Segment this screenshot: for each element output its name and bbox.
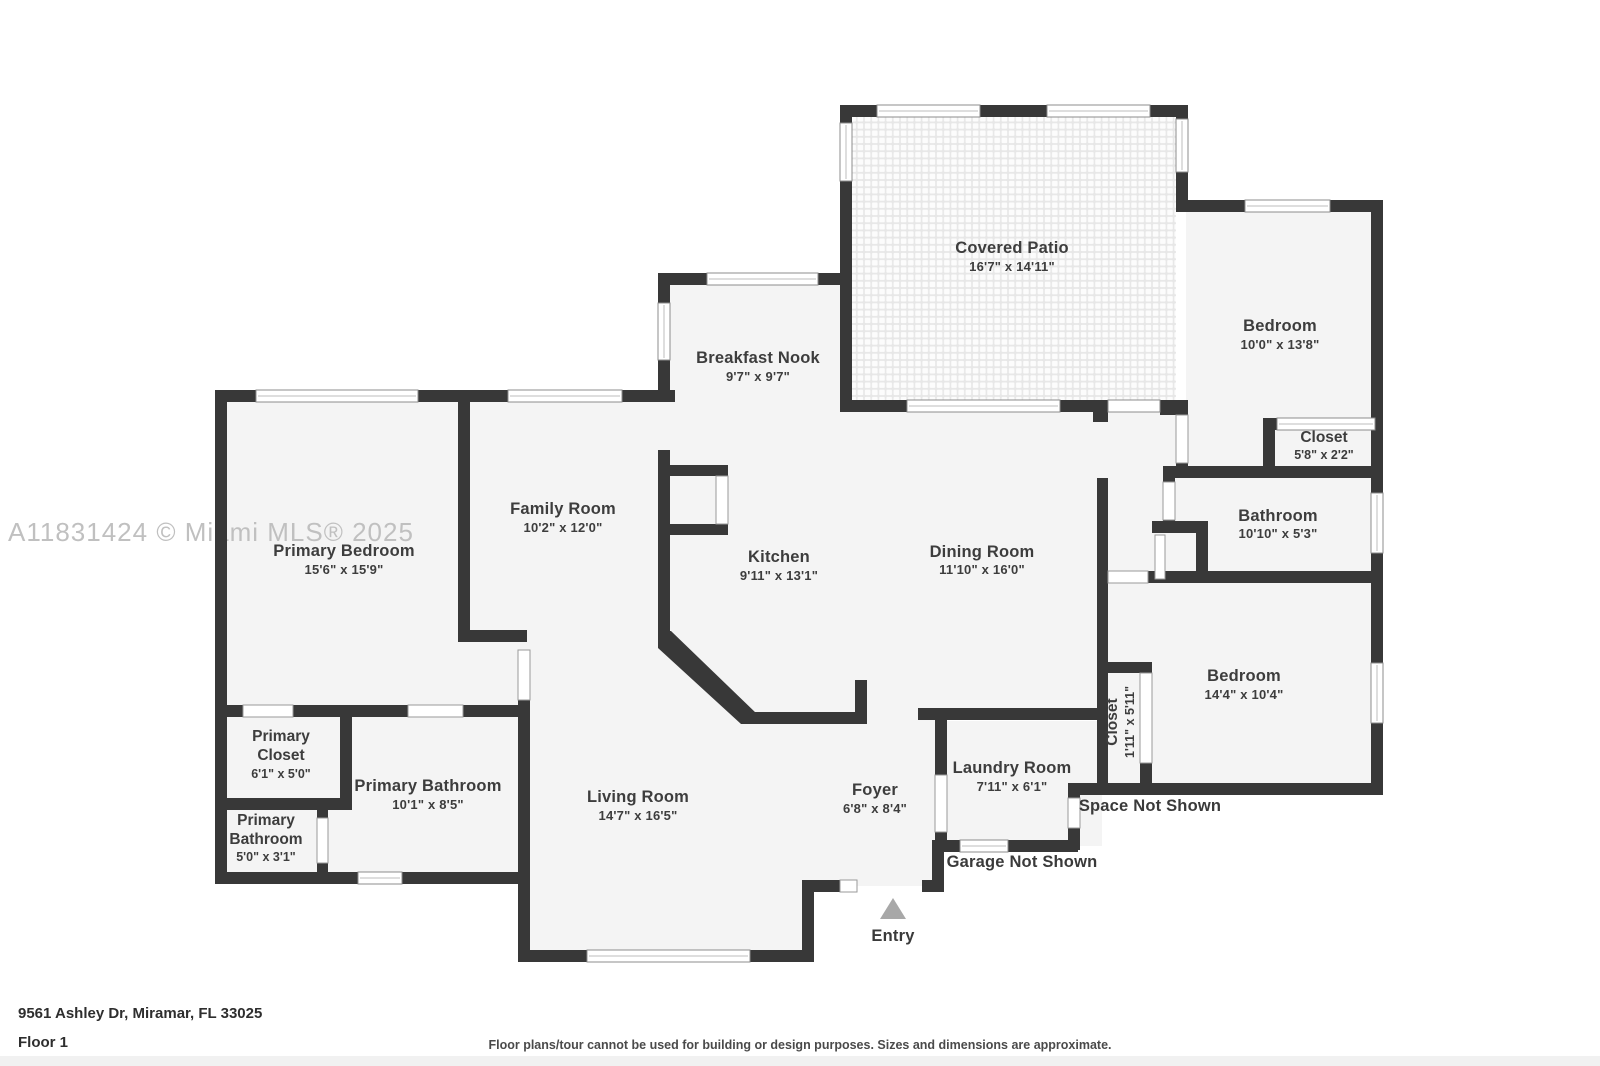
label-primary-bathroom-sm-2: Bathroom — [229, 831, 302, 848]
floor-plan-page: A11831424 © Miami MLS® 2025 — [0, 0, 1600, 1066]
dims-primary-bathroom: 10'1" x 8'5" — [392, 797, 464, 812]
dims-foyer: 6'8" x 8'4" — [843, 801, 907, 816]
garage-not-shown-label: Garage Not Shown — [947, 853, 1098, 871]
dims-primary-bathroom-sm: 5'0" x 3'1" — [236, 850, 296, 864]
disclaimer-text: Floor plans/tour cannot be used for buil… — [488, 1038, 1111, 1052]
label-bathroom: Bathroom — [1238, 507, 1318, 525]
footer: 9561 Ashley Dr, Miramar, FL 33025 Floor … — [0, 1005, 1600, 1066]
dims-family-room: 10'2" x 12'0" — [524, 520, 603, 535]
label-laundry-room: Laundry Room — [953, 759, 1072, 777]
dims-closet-top: 5'8" x 2'2" — [1294, 448, 1354, 462]
dims-kitchen: 9'11" x 13'1" — [740, 568, 818, 583]
room-area-bedroom-entry — [1102, 577, 1152, 667]
dims-covered-patio: 16'7" x 14'11" — [969, 259, 1055, 274]
floor-plan-canvas: A11831424 © Miami MLS® 2025 — [0, 0, 1600, 1066]
dims-dining-room: 11'10" x 16'0" — [939, 562, 1025, 577]
label-breakfast-nook: Breakfast Nook — [696, 349, 820, 367]
dims-bedroom-top: 10'0" x 13'8" — [1241, 337, 1320, 352]
label-foyer: Foyer — [852, 781, 898, 799]
dims-breakfast-nook: 9'7" x 9'7" — [726, 369, 790, 384]
dims-closet-hall: 1'11" x 5'11" — [1123, 686, 1137, 758]
room-area-dining-room — [669, 406, 1102, 716]
label-covered-patio: Covered Patio — [955, 239, 1069, 257]
label-bedroom-right: Bedroom — [1207, 667, 1281, 685]
entry-label: Entry — [871, 927, 915, 945]
label-family-room: Family Room — [510, 500, 616, 518]
label-primary-closet-2: Closet — [257, 747, 304, 764]
dims-primary-closet: 6'1" x 5'0" — [251, 767, 311, 781]
label-primary-closet-1: Primary — [252, 728, 310, 745]
label-living-room: Living Room — [587, 788, 689, 806]
space-not-shown-label: Space Not Shown — [1079, 797, 1221, 815]
label-primary-bathroom: Primary Bathroom — [354, 777, 501, 795]
dims-bathroom: 10'10" x 5'3" — [1239, 526, 1318, 541]
label-closet-hall: Closet — [1104, 698, 1121, 745]
label-primary-bedroom: Primary Bedroom — [273, 542, 414, 560]
label-bedroom-top: Bedroom — [1243, 317, 1317, 335]
floor-text: Floor 1 — [18, 1034, 68, 1051]
address-text: 9561 Ashley Dr, Miramar, FL 33025 — [18, 1005, 262, 1022]
dims-laundry-room: 7'11" x 6'1" — [977, 779, 1048, 794]
bottom-bar — [0, 1056, 1600, 1066]
label-closet-top: Closet — [1300, 429, 1347, 446]
dims-bedroom-right: 14'4" x 10'4" — [1205, 687, 1284, 702]
dims-living-room: 14'7" x 16'5" — [599, 808, 678, 823]
entry-arrow-icon — [880, 898, 906, 919]
label-kitchen: Kitchen — [748, 548, 810, 566]
label-dining-room: Dining Room — [930, 543, 1035, 561]
dims-primary-bedroom: 15'6" x 15'9" — [305, 562, 384, 577]
room-area-family-room — [464, 396, 675, 642]
label-primary-bathroom-sm-1: Primary — [237, 812, 295, 829]
entry-marker: Entry — [871, 898, 915, 945]
